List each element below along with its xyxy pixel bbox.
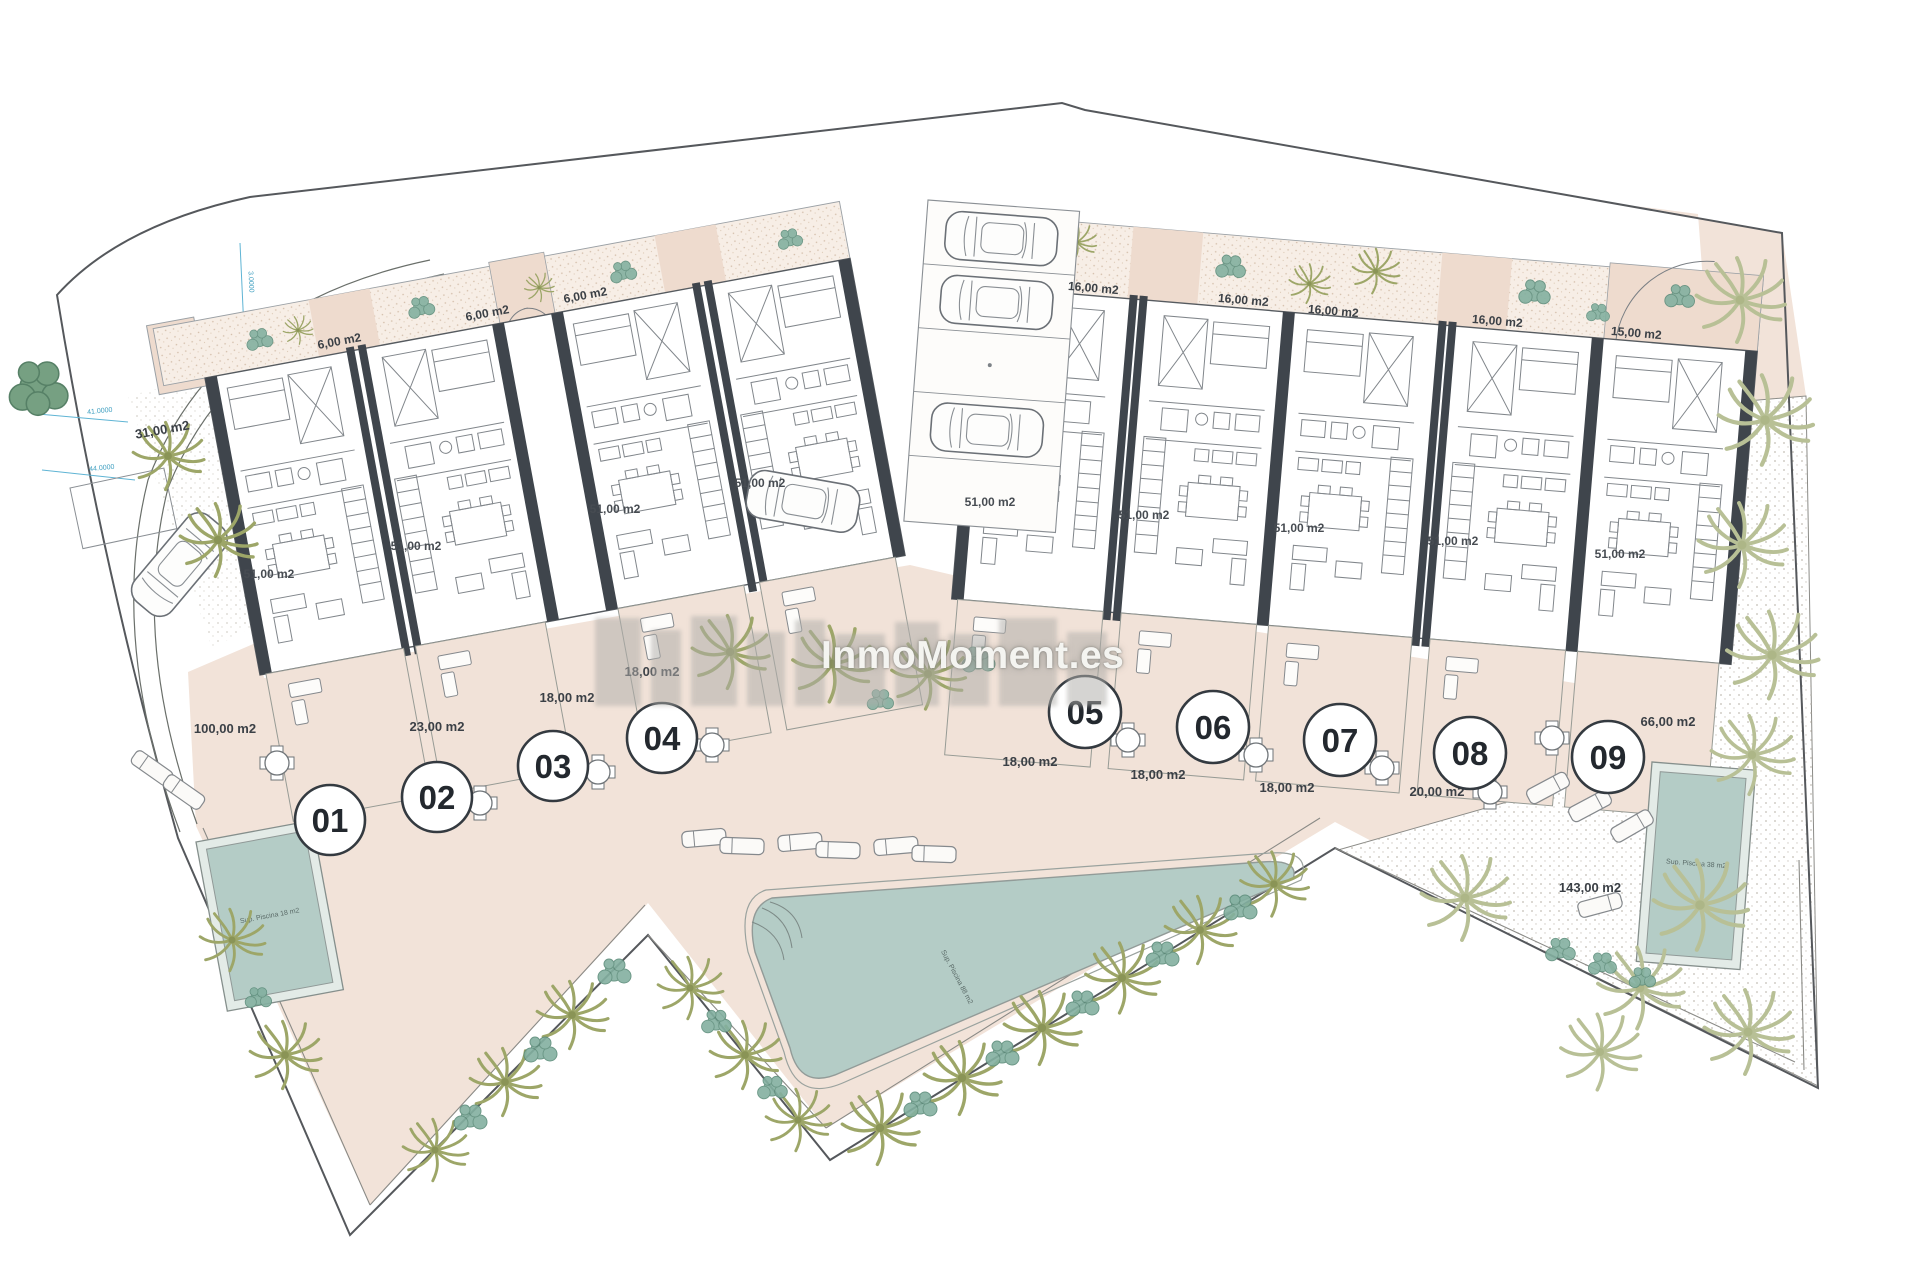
unit-number-05: 05 xyxy=(1067,694,1104,731)
unit-badge-06: 06 xyxy=(1177,691,1249,763)
terrace-area-03: 18,00 m2 xyxy=(540,690,595,705)
shrub-icon xyxy=(598,959,631,984)
unit-number-06: 06 xyxy=(1195,709,1232,746)
pool-right: Sup. Piscina 38 m2 xyxy=(1636,762,1755,970)
dimension-left-lower: 44.0000 xyxy=(89,464,115,474)
unit-badge-09: 09 xyxy=(1572,721,1644,793)
lounger-icon xyxy=(816,841,861,859)
terrace-area-05: 18,00 m2 xyxy=(1003,754,1058,769)
lounger-icon xyxy=(912,845,957,863)
unit-number-01: 01 xyxy=(312,802,349,839)
shrub-icon xyxy=(702,1010,732,1033)
dimension-top: 3.0000 xyxy=(246,271,254,293)
shrub-icon xyxy=(986,1041,1019,1066)
unit-number-03: 03 xyxy=(535,748,572,785)
unit-badge-07: 07 xyxy=(1304,704,1376,776)
unit-area-09: 51,00 m2 xyxy=(1595,547,1646,561)
shrub-icon xyxy=(758,1076,788,1099)
terrace-area-02: 23,00 m2 xyxy=(410,719,465,734)
unit-number-02: 02 xyxy=(419,779,456,816)
shrub-icon xyxy=(1066,991,1099,1016)
shrub-icon xyxy=(524,1037,557,1062)
car-icon xyxy=(939,274,1054,330)
site-plan-drawing: 3.0000 41.0000 44.0000 xyxy=(0,0,1920,1280)
right-gravel-area-label: 143,00 m2 xyxy=(1559,880,1621,895)
lounger-icon xyxy=(720,837,765,855)
unit-area-02: 51,00 m2 xyxy=(391,539,442,553)
unit-area-01: 51,00 m2 xyxy=(244,567,295,581)
unit-badge-05: 05 xyxy=(1049,676,1121,748)
terrace-area-06: 18,00 m2 xyxy=(1131,767,1186,782)
shrub-icon xyxy=(904,1092,937,1117)
unit-badge-03: 03 xyxy=(518,731,588,801)
parking-area xyxy=(904,200,1080,532)
unit-badge-08: 08 xyxy=(1434,717,1506,789)
unit-area-08: 51,00 m2 xyxy=(1428,534,1479,548)
unit-number-09: 09 xyxy=(1590,739,1627,776)
unit-badge-04: 04 xyxy=(627,703,697,773)
unit-area-03: 51,00 m2 xyxy=(590,502,641,516)
unit-badge-01: 01 xyxy=(295,785,365,855)
unit-number-08: 08 xyxy=(1452,735,1489,772)
unit-area-06: 51,00 m2 xyxy=(1119,508,1170,522)
unit-area-07: 51,00 m2 xyxy=(1274,521,1325,535)
unit-area-04: 51,00 m2 xyxy=(735,476,786,490)
terrace-area-07: 18,00 m2 xyxy=(1260,780,1315,795)
site-plan-page: 3.0000 41.0000 44.0000 xyxy=(0,0,1920,1280)
unit-area-05: 51,00 m2 xyxy=(965,495,1016,509)
dimension-left-upper: 41.0000 xyxy=(87,407,113,417)
shrub-icon xyxy=(1146,942,1179,967)
right-side-area-label: 66,00 m2 xyxy=(1641,714,1696,729)
unit-number-04: 04 xyxy=(644,720,681,757)
palm-icon xyxy=(1561,1014,1641,1090)
tree-icon xyxy=(9,362,68,415)
car-icon xyxy=(929,402,1044,458)
terrace-area-04: 18,00 m2 xyxy=(625,664,680,679)
unit-badge-02: 02 xyxy=(402,762,472,832)
terrace-area-01: 100,00 m2 xyxy=(194,721,256,736)
unit-number-07: 07 xyxy=(1322,722,1359,759)
car-icon xyxy=(944,210,1059,266)
right-building-slab xyxy=(952,286,1758,664)
